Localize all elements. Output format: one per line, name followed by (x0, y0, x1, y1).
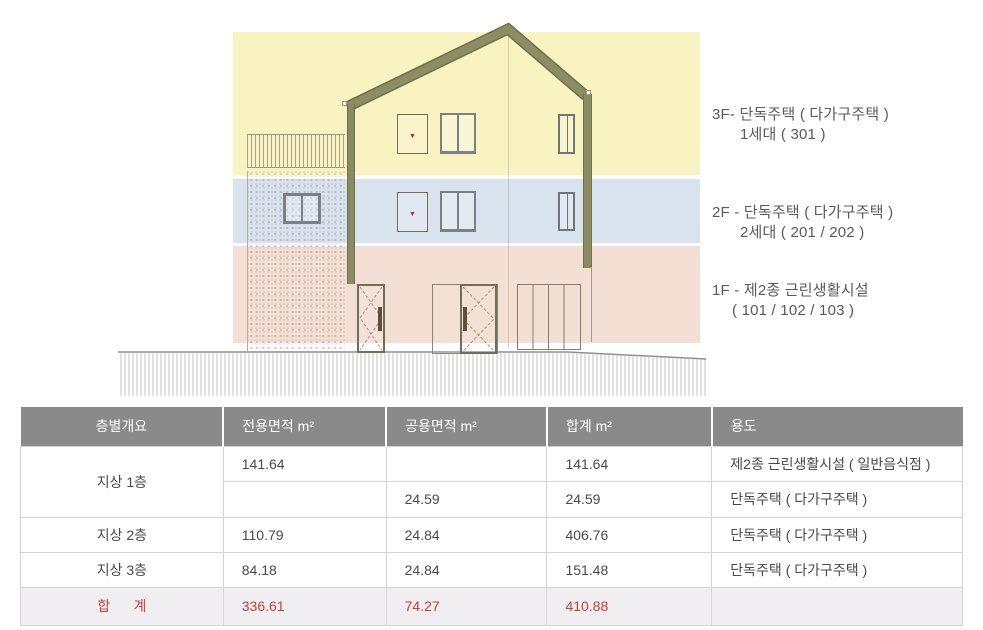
cell-exclusive-total: 336.61 (223, 587, 386, 625)
cell-common: 24.59 (386, 481, 547, 517)
cell-floor-total: 합 계 (21, 587, 224, 625)
header-total-area: 합계 m² (547, 407, 712, 446)
door-panel-3f: ▼ (397, 114, 428, 154)
right-wall (583, 94, 592, 268)
cell-floor: 지상 3층 (21, 552, 224, 587)
cell-common (386, 446, 547, 481)
cell-common: 24.84 (386, 517, 547, 552)
cell-total: 151.48 (547, 552, 712, 587)
folding-door-1f (517, 284, 581, 350)
storefront-center-1f (432, 284, 498, 354)
cell-total: 141.64 (547, 446, 712, 481)
annex-window-2f (283, 193, 321, 224)
floor-label-line1: 1F - 제2종 근린생활시설 (712, 281, 869, 301)
window-2f (440, 191, 476, 232)
floor-label-line2: 2세대 ( 201 / 202 ) (712, 223, 893, 243)
page: ▼ ▼ 3F- 단독주택 ( 다가구주택 ) (0, 0, 983, 630)
window-mullion (567, 194, 568, 229)
window-mullion (457, 115, 459, 151)
left-eave-notch (342, 101, 347, 106)
cell-use: 단독주택 ( 다가구주택 ) (712, 481, 963, 517)
table-header-row: 층별개요 전용면적 m² 공용면적 m² 합계 m² 용도 (21, 407, 963, 446)
ground-hatch (118, 353, 706, 396)
floor-label-line1: 2F - 단독주택 ( 다가구주택 ) (712, 203, 893, 223)
cell-floor: 지상 1층 (21, 446, 224, 517)
door-marker-icon: ▼ (409, 133, 416, 140)
slim-window-2f (558, 192, 575, 231)
floor-label-line2: 1세대 ( 301 ) (712, 125, 889, 145)
entrance-door-1f-left (357, 284, 385, 353)
entrance-door-1f-center (460, 284, 497, 354)
cell-use: 단독주택 ( 다가구주택 ) (712, 552, 963, 587)
table-row: 지상 1층 141.64 141.64 제2종 근린생활시설 ( 일반음식점 ) (21, 446, 963, 481)
cell-total: 24.59 (547, 481, 712, 517)
cell-exclusive: 84.18 (223, 552, 386, 587)
cell-exclusive: 141.64 (223, 446, 386, 481)
cell-use: 단독주택 ( 다가구주택 ) (712, 517, 963, 552)
table-row: 지상 2층 110.79 24.84 406.76 단독주택 ( 다가구주택 ) (21, 517, 963, 552)
header-exclusive-area: 전용면적 m² (223, 407, 386, 446)
window-mullion (301, 196, 303, 221)
left-wall (347, 104, 355, 284)
slim-window-3f (558, 114, 575, 154)
header-common-area: 공용면적 m² (386, 407, 547, 446)
window-mullion (457, 193, 459, 229)
cell-total: 406.76 (547, 517, 712, 552)
building-elevation-diagram: ▼ ▼ 3F- 단독주택 ( 다가구주택 ) (0, 0, 983, 405)
door-handle (378, 307, 382, 331)
header-use: 용도 (712, 407, 963, 446)
floor-label-1f: 1F - 제2종 근린생활시설 ( 101 / 102 / 103 ) (712, 281, 869, 321)
cell-common-total: 74.27 (386, 587, 547, 625)
door-panel-2f: ▼ (397, 192, 428, 232)
roof-railing (247, 134, 345, 168)
cell-total-total: 410.88 (547, 587, 712, 625)
floor-label-2f: 2F - 단독주택 ( 다가구주택 ) 2세대 ( 201 / 202 ) (712, 203, 893, 243)
header-floor-overview: 층별개요 (21, 407, 224, 446)
window-mullion (567, 116, 568, 152)
table-row: 지상 3층 84.18 24.84 151.48 단독주택 ( 다가구주택 ) (21, 552, 963, 587)
cell-common: 24.84 (386, 552, 547, 587)
floor-label-line2: ( 101 / 102 / 103 ) (712, 301, 869, 321)
cell-use-total (712, 587, 963, 625)
floor-label-line1: 3F- 단독주택 ( 다가구주택 ) (712, 105, 889, 125)
right-wall-line (591, 267, 592, 342)
door-handle (463, 307, 467, 331)
floor-label-3f: 3F- 단독주택 ( 다가구주택 ) 1세대 ( 301 ) (712, 105, 889, 145)
right-eave-notch (586, 90, 591, 95)
window-3f (440, 113, 476, 154)
floor-area-table: 층별개요 전용면적 m² 공용면적 m² 합계 m² 용도 지상 1층 141.… (20, 407, 963, 626)
cell-exclusive (223, 481, 386, 517)
door-marker-icon: ▼ (409, 211, 416, 218)
facade-joint-line (508, 34, 509, 348)
table-total-row: 합 계 336.61 74.27 410.88 (21, 587, 963, 625)
cell-use: 제2종 근린생활시설 ( 일반음식점 ) (712, 446, 963, 481)
cell-floor: 지상 2층 (21, 517, 224, 552)
cell-exclusive: 110.79 (223, 517, 386, 552)
